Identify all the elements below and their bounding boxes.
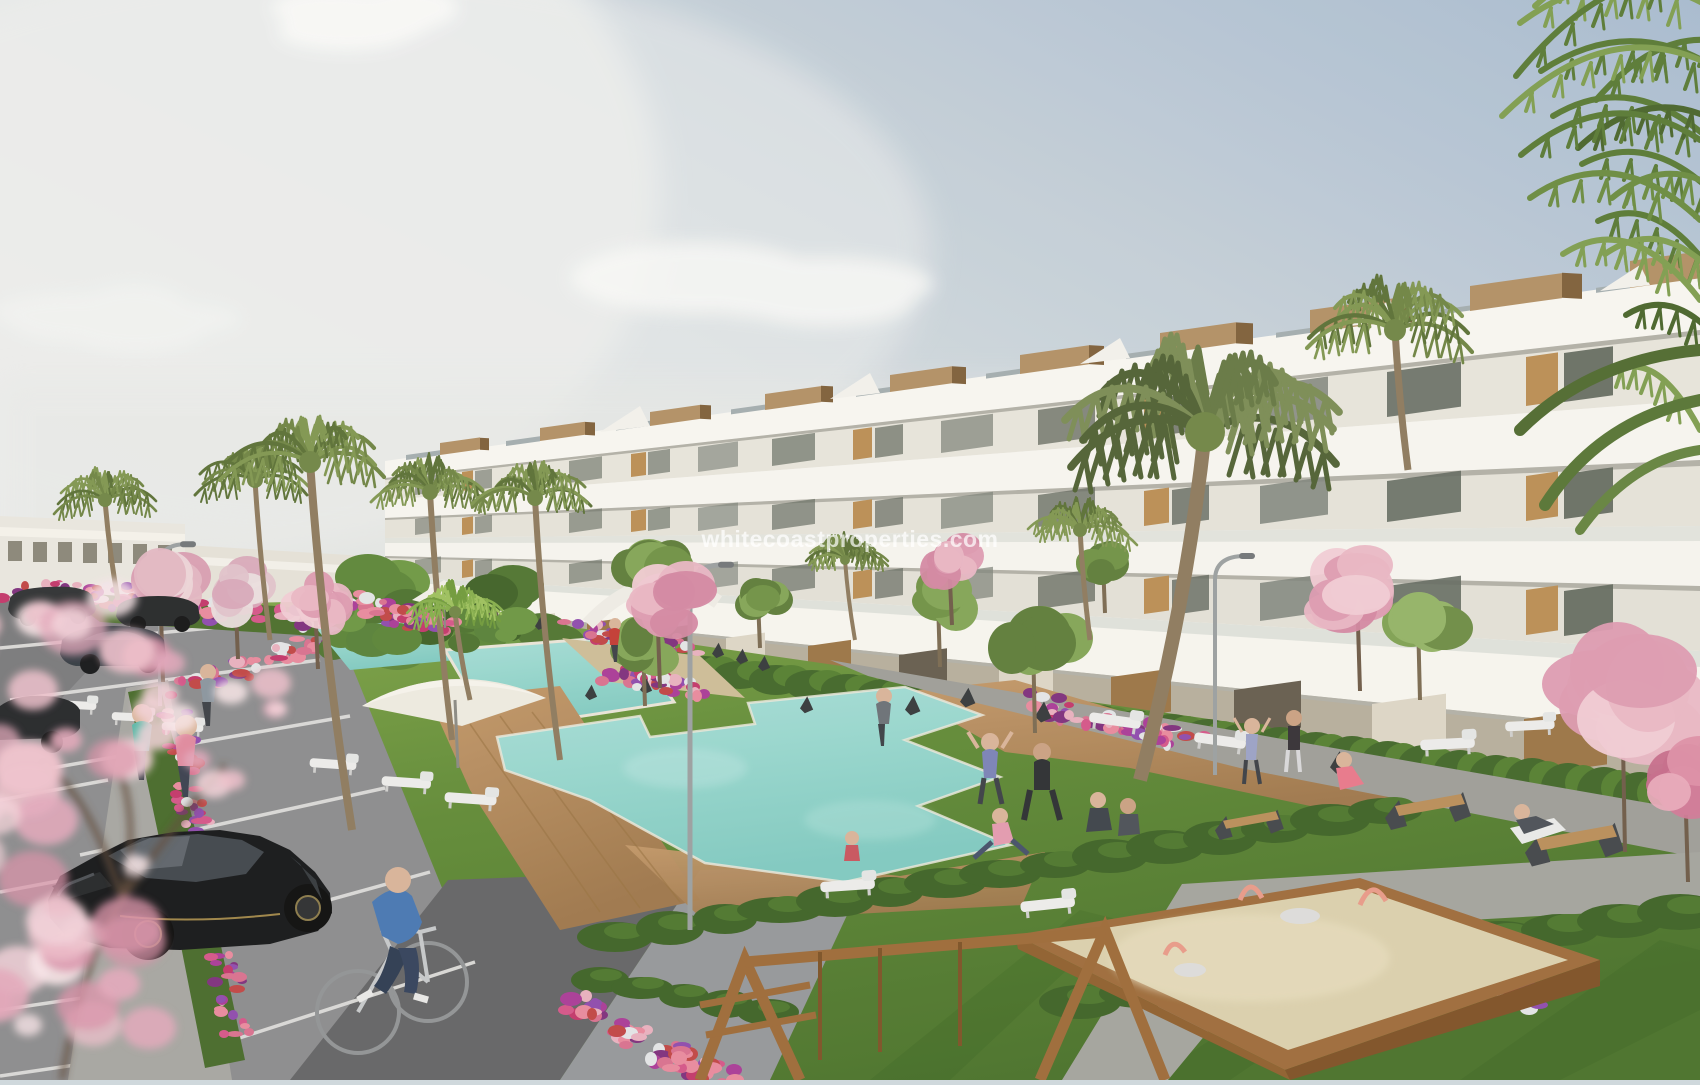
svg-text:whitecoastproperties.com: whitecoastproperties.com [700, 526, 998, 552]
